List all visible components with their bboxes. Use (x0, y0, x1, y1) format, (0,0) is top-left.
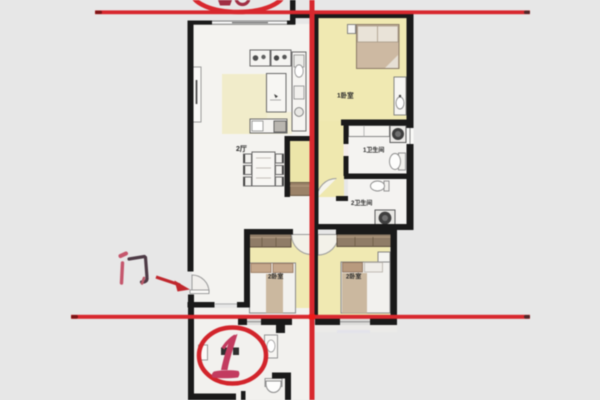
svg-text:2卧室: 2卧室 (268, 273, 283, 281)
svg-text:1卧室: 1卧室 (337, 91, 354, 100)
svg-text:2卧室: 2卧室 (346, 273, 361, 281)
svg-text:1卫生间: 1卫生间 (363, 146, 384, 154)
svg-text:2卫生间: 2卫生间 (351, 199, 372, 207)
svg-text:2厅: 2厅 (236, 145, 247, 153)
